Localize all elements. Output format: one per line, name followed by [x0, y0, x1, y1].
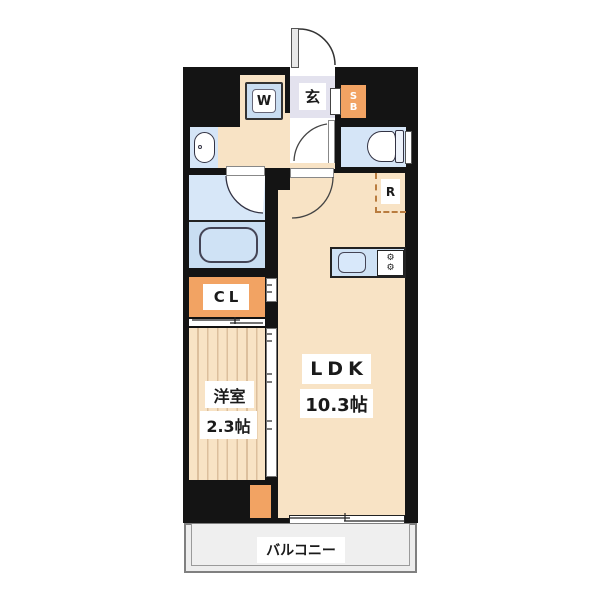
kitchen-sink: [338, 252, 366, 273]
entrance-doorway: [290, 67, 335, 76]
western-room-size-box: 2.3帖: [200, 411, 257, 439]
floorplan: 玄 S B W CL 洋室 2.3帖: [0, 0, 600, 600]
bathtub: [199, 227, 258, 263]
refrigerator-label-box: R: [381, 179, 400, 204]
balcony-label: バルコニー: [266, 540, 336, 560]
western-room-label-box: 洋室: [205, 381, 254, 408]
shoe-box: S B: [341, 85, 366, 118]
balcony-label-box: バルコニー: [257, 537, 345, 563]
toilet-window: [405, 131, 412, 164]
stove-burner-icon: ⚙: [386, 263, 394, 273]
western-room-label: 洋室: [213, 383, 245, 407]
shoe-box-label-b: B: [350, 102, 358, 113]
washbasin-faucet-icon: [198, 145, 202, 149]
pillar: [250, 485, 271, 518]
ldk-label-box: LDK: [302, 354, 371, 384]
bathroom-door-leaf: [226, 166, 265, 176]
sliding-door-upper: [266, 278, 277, 302]
stove: ⚙ ⚙: [377, 250, 404, 276]
washing-machine-label: W: [257, 94, 271, 109]
closet-sliding-door: [189, 317, 265, 328]
genkan-door-leaf: [328, 120, 335, 165]
entrance-door-leaf: [291, 28, 299, 68]
ldk-size: 10.3帖: [305, 391, 367, 417]
sliding-door: [266, 328, 277, 477]
genkan-notch: [330, 88, 341, 115]
western-room-size: 2.3帖: [206, 413, 250, 437]
ldk-door-leaf: [290, 168, 334, 178]
washing-machine-inner: W: [252, 89, 276, 113]
shoe-box-label-s: S: [350, 91, 357, 102]
toilet-bowl: [367, 131, 396, 162]
balcony: バルコニー: [184, 523, 417, 573]
genkan-label-text: 玄: [305, 86, 320, 107]
entrance-door-arc: [299, 29, 335, 65]
stove-burner-icon: ⚙: [386, 253, 394, 263]
ldk-size-box: 10.3帖: [300, 389, 373, 418]
closet-label-text: CL: [214, 288, 243, 306]
refrigerator-label: R: [386, 185, 395, 199]
genkan-label: 玄: [299, 83, 326, 110]
toilet-tank: [395, 130, 404, 163]
closet-label: CL: [203, 284, 249, 310]
washroom-floor-lower: [218, 127, 290, 168]
washing-machine: W: [245, 82, 283, 120]
ldk-label: LDK: [310, 358, 368, 380]
